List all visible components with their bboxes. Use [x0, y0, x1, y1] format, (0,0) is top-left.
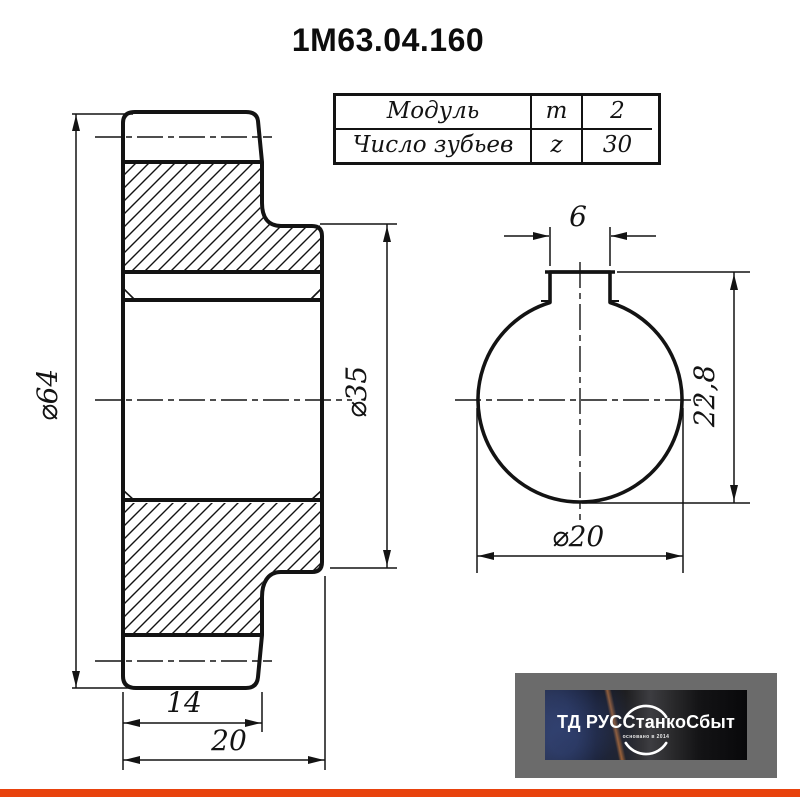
rim-width-label: 14 [166, 686, 202, 719]
dim-keyway-width: 6 [504, 200, 656, 266]
logo-photo-background: ТД РУССтанкоСбыт основано в 2014 [545, 690, 747, 760]
logo-company-name: ТД РУССтанкоСбыт [545, 712, 747, 733]
dim-outer-diameter: ⌀64 [31, 114, 133, 688]
logo-tagline: основано в 2014 [545, 734, 747, 740]
overall-width-label: 20 [210, 724, 247, 757]
keyway-height-label: 22,8 [688, 365, 721, 428]
hub-diameter-label: ⌀35 [340, 366, 373, 419]
keyway-width-label: 6 [569, 200, 587, 233]
bore-diameter-label: ⌀20 [552, 520, 605, 553]
section-hatch-lower [125, 503, 320, 633]
vendor-logo: ТД РУССтанкоСбыт основано в 2014 [515, 673, 777, 778]
drawing-sheet: 1М63.04.160 Модуль m 2 Число зубьев z 30 [0, 0, 800, 800]
dim-hub-diameter: ⌀35 [320, 224, 397, 568]
bore-end-view: 6 22,8 ⌀20 [455, 200, 750, 573]
gear-section-view: ⌀64 ⌀35 14 20 [31, 112, 397, 770]
footer-accent-bar [0, 789, 800, 797]
outer-diameter-label: ⌀64 [31, 369, 64, 422]
section-hatch-upper [125, 164, 320, 270]
